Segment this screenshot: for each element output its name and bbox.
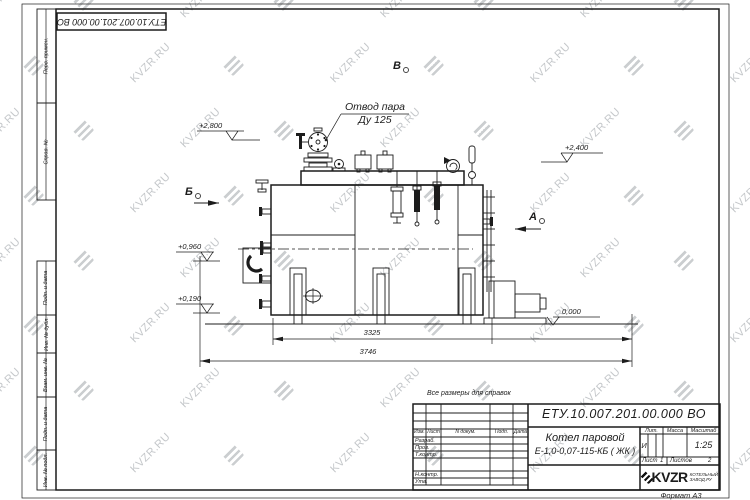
margin-cell-inv-dubl: Инв. № дубл. <box>37 315 56 353</box>
view-label-b: Б <box>185 186 201 199</box>
boiler-side-view <box>205 128 638 324</box>
view-rotation-mark <box>195 193 201 199</box>
downcomer-pipe <box>483 190 495 292</box>
drawing-linework <box>0 0 750 500</box>
margin-cell-podp-data-1: Подп. и дата <box>37 261 56 315</box>
company-logo: KVZR КОТЕЛЬНЫЙ ЗАВОД.РУ <box>643 466 718 488</box>
elevation-2400: +2,400 <box>565 143 588 152</box>
view-label-v: В <box>393 60 409 73</box>
view-arrows <box>194 200 541 231</box>
elevation-0190: +0,190 <box>178 294 201 303</box>
pressure-gauge <box>444 157 460 173</box>
elevation-2800: +2,800 <box>199 121 222 130</box>
margin-cell-perv-primen: Перв. примен. <box>37 9 56 103</box>
title-designation: ЕТУ.10.007.201.00.000 ВО <box>530 407 718 421</box>
margin-label: Подп. и дата <box>44 271 50 305</box>
product-name-line1: Котел паровой <box>530 432 640 444</box>
top-designation-stamp: ЕТУ.10.007.201.00.000 ВО <box>57 13 166 30</box>
reference-note: Все размеры для справок <box>427 390 511 397</box>
kvzr-logo-text: KVZR <box>652 469 688 485</box>
sheets-value: 2 <box>708 458 711 464</box>
col-header-podp: Подп. <box>490 429 513 435</box>
row-razrab: Разраб. <box>415 438 435 444</box>
col-header-list: Лист <box>426 429 441 435</box>
margin-cell-sprav-no: Справ. № <box>37 103 56 200</box>
lit-value: И <box>640 441 648 450</box>
right-nozzle <box>483 217 493 226</box>
elevation-0000: 0,000 <box>562 307 581 316</box>
fan-unit <box>484 281 546 324</box>
margin-label: Инв. № подл. <box>44 453 50 487</box>
drum-hatches <box>355 151 393 172</box>
leader-note-line2: Ду 125 <box>341 114 409 126</box>
margin-label: Подп. и дата <box>44 406 50 440</box>
safety-valve <box>333 160 345 172</box>
dimension-3325: 3325 <box>352 328 392 337</box>
dimension-3746: 3746 <box>348 347 388 356</box>
margin-label: Инв. № дубл. <box>44 317 50 351</box>
drawing-sheet: KVZR.RUKVZR.RUKVZR.RUKVZR.RUKVZR.RUKVZR.… <box>0 0 750 500</box>
steam-outlet-valve <box>296 128 332 171</box>
kvzr-logo-subtext: КОТЕЛЬНЫЙ ЗАВОД.РУ <box>690 472 718 482</box>
view-rotation-mark <box>539 218 545 224</box>
sheets-label: Листов <box>670 458 692 464</box>
leader-note-line1: Отвод пара <box>341 101 409 113</box>
row-nkontr: Н.контр. <box>415 472 438 478</box>
mass-header: Масса <box>663 428 687 434</box>
top-designation-text: ЕТУ.10.007.201.00.000 ВО <box>57 17 166 27</box>
margin-cell-inv-podl: Инв. № подл. <box>37 450 56 490</box>
view-label-a: А <box>529 211 545 224</box>
lit-header: Лит. <box>640 428 663 434</box>
margin-cell-podp-data-2: Подп. и дата <box>37 397 56 450</box>
margin-label: Справ. № <box>44 139 50 164</box>
col-header-ndoc: N докум. <box>441 429 490 435</box>
margin-cell-vzam-inv: Взам. инв. № <box>37 353 56 397</box>
scale-value: 1:25 <box>687 440 720 450</box>
margin-label: Взам. инв. № <box>44 358 50 392</box>
product-name-line2: Е-1,0-0,07-115-КБ ( ЖК ) <box>528 446 642 456</box>
sheet-label: Лист <box>642 458 657 464</box>
row-tkontr: Т.контр. <box>415 452 437 458</box>
scale-header: Масштаб <box>687 428 720 434</box>
row-prov: Пров. <box>415 445 430 451</box>
sheet-value: 1 <box>660 458 663 464</box>
elevation-0960: +0,960 <box>178 242 201 251</box>
row-utv: Утв. <box>415 479 428 485</box>
col-header-data: Дата <box>513 429 528 435</box>
elevation-marks <box>176 131 603 325</box>
format-note: Формат А3 <box>646 491 716 500</box>
left-nozzles <box>256 180 271 309</box>
thermometer <box>469 146 476 185</box>
water-level-gauges <box>391 171 441 226</box>
margin-label: Перв. примен. <box>44 38 50 75</box>
view-rotation-mark <box>403 67 409 73</box>
col-header-izm: Изм. <box>413 429 426 435</box>
sheet-frame <box>22 4 729 498</box>
